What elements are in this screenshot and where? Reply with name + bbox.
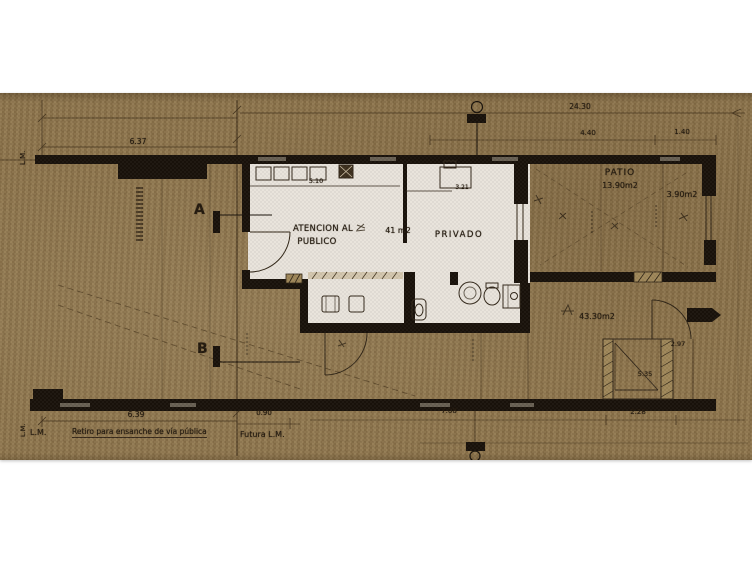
dim-tank-inner: 5.35	[631, 371, 659, 378]
dim-private-width: 3.21	[448, 185, 476, 191]
room-label-privado: PRIVADO	[430, 231, 488, 240]
dim-bottom-offset: 0.90	[248, 410, 280, 417]
dim-overall-width: 24.30	[558, 103, 602, 111]
lm-marker-bottom: L.M.	[30, 429, 46, 437]
room-area-strip: 3.90m2	[660, 191, 704, 199]
entrance-arrow	[687, 308, 721, 322]
room-label-atencion-line2: PUBLICO	[286, 238, 348, 247]
dim-tank-width: 2.28	[623, 409, 653, 416]
scanned-page: L.M. 6.37 24.30 4.40 1.40 5.10 ATENCION …	[0, 0, 752, 564]
yard-area-label: 43.30m2	[572, 313, 622, 321]
room-area-atencion: 41 m2	[378, 227, 418, 235]
retiro-note: Retiro para ensanche de vía pública	[72, 428, 207, 438]
dim-bottom-center: 7.08	[433, 408, 465, 415]
room-label-patio: PATIO	[592, 169, 648, 178]
dim-tank-side: 2.97	[664, 341, 692, 348]
room-label-atencion-line1: ATENCION AL	[286, 225, 360, 234]
section-marker-b-label: B	[197, 342, 208, 357]
dim-room-width: 5.10	[300, 178, 332, 185]
lm-marker-top-left: L.M.	[20, 151, 27, 165]
room-area-patio: 13.90m2	[590, 182, 650, 190]
dim-bottom-left-width: 6.39	[118, 411, 154, 419]
lm-marker-bottom-left: L.M.	[20, 424, 27, 437]
illegible-vertical-text	[136, 185, 143, 241]
dim-patio-width: 4.40	[572, 130, 604, 137]
dim-strip-width: 1.40	[666, 129, 698, 136]
futura-lm-note: Futura L.M.	[240, 431, 285, 439]
floor-plan-scan: L.M. 6.37 24.30 4.40 1.40 5.10 ATENCION …	[0, 93, 752, 460]
section-marker-a-label: A	[194, 203, 205, 218]
plan-drawing	[0, 93, 752, 460]
dim-top-left-width: 6.37	[118, 138, 158, 146]
